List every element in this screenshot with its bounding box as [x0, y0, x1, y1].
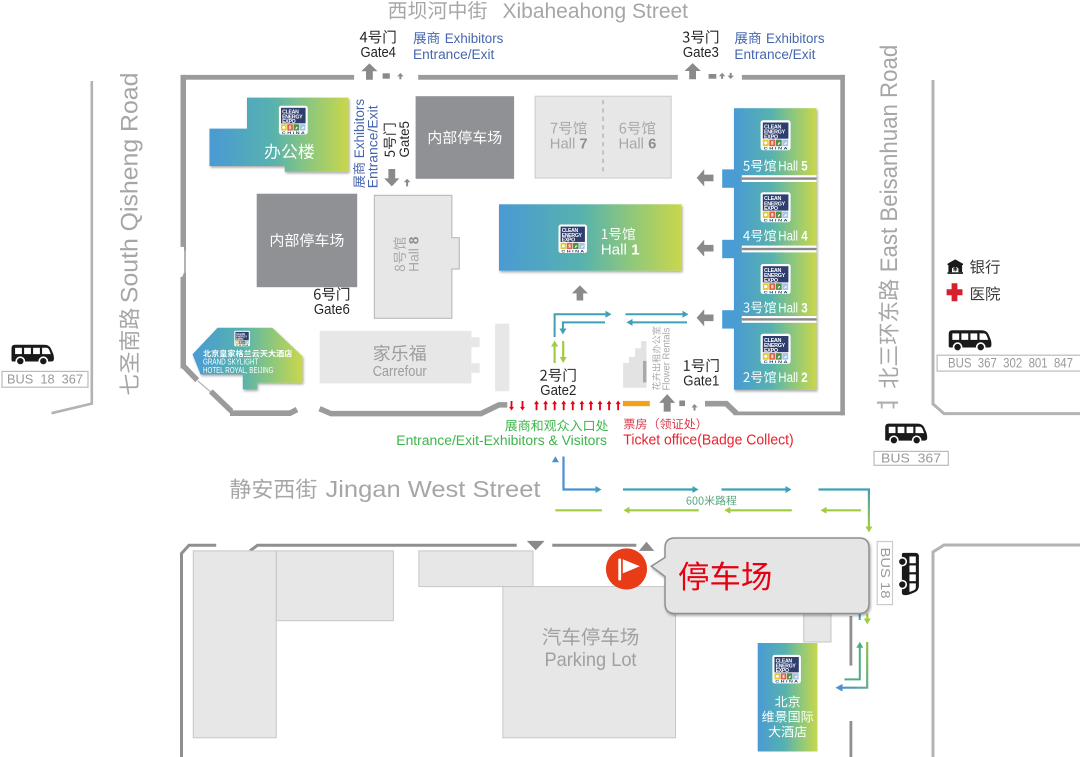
svg-text:Hall 4: Hall 4 [778, 229, 808, 244]
svg-text:BUS 367 302 801 847: BUS 367 302 801 847 [948, 356, 1073, 371]
svg-text:Entrance/Exit-Exhibitors & Vis: Entrance/Exit-Exhibitors & Visitors [396, 433, 607, 449]
svg-text:East Beisanhuan Road: East Beisanhuan Road [876, 45, 903, 273]
svg-text:Gate5: Gate5 [397, 121, 412, 158]
svg-text:Exhibitors: Exhibitors [766, 31, 825, 47]
svg-text:Hall 2: Hall 2 [778, 370, 807, 385]
svg-text:South Qisheng Road: South Qisheng Road [117, 73, 144, 304]
svg-text:Entrance/Exit: Entrance/Exit [734, 47, 815, 63]
svg-text:Gate3: Gate3 [683, 45, 719, 61]
svg-text:Parking Lot: Parking Lot [545, 649, 638, 671]
svg-text:Hall 3: Hall 3 [778, 300, 807, 315]
svg-text:Gate2: Gate2 [540, 383, 576, 399]
svg-text:Hall 7: Hall 7 [550, 137, 588, 153]
svg-text:Hall 8: Hall 8 [407, 236, 422, 272]
svg-text:Hall 6: Hall 6 [618, 137, 656, 153]
svg-text:BUS 18: BUS 18 [878, 548, 892, 599]
svg-text:Jingan West Street: Jingan West Street [326, 476, 542, 502]
svg-text:Entrance/Exit: Entrance/Exit [413, 47, 494, 63]
svg-text:BUS 367: BUS 367 [881, 450, 941, 465]
svg-text:Gate4: Gate4 [360, 45, 396, 61]
svg-text:Gate1: Gate1 [683, 373, 719, 389]
svg-text:Flower Rentals: Flower Rentals [661, 328, 673, 391]
svg-text:BUS 18 367: BUS 18 367 [7, 372, 83, 387]
svg-text:Hall 1: Hall 1 [601, 241, 640, 258]
svg-text:Ticket office(Badge Collect): Ticket office(Badge Collect) [623, 432, 793, 448]
svg-text:Entrance/Exit: Entrance/Exit [366, 105, 381, 188]
svg-text:Carrefour: Carrefour [373, 364, 427, 380]
svg-text:Gate6: Gate6 [314, 302, 350, 318]
svg-text:Hall 5: Hall 5 [778, 159, 808, 174]
svg-text:Xibaheahong Street: Xibaheahong Street [503, 0, 689, 23]
svg-text:Exhibitors: Exhibitors [445, 31, 504, 47]
svg-text:HOTEL ROYAL, BEIJING: HOTEL ROYAL, BEIJING [203, 365, 274, 375]
